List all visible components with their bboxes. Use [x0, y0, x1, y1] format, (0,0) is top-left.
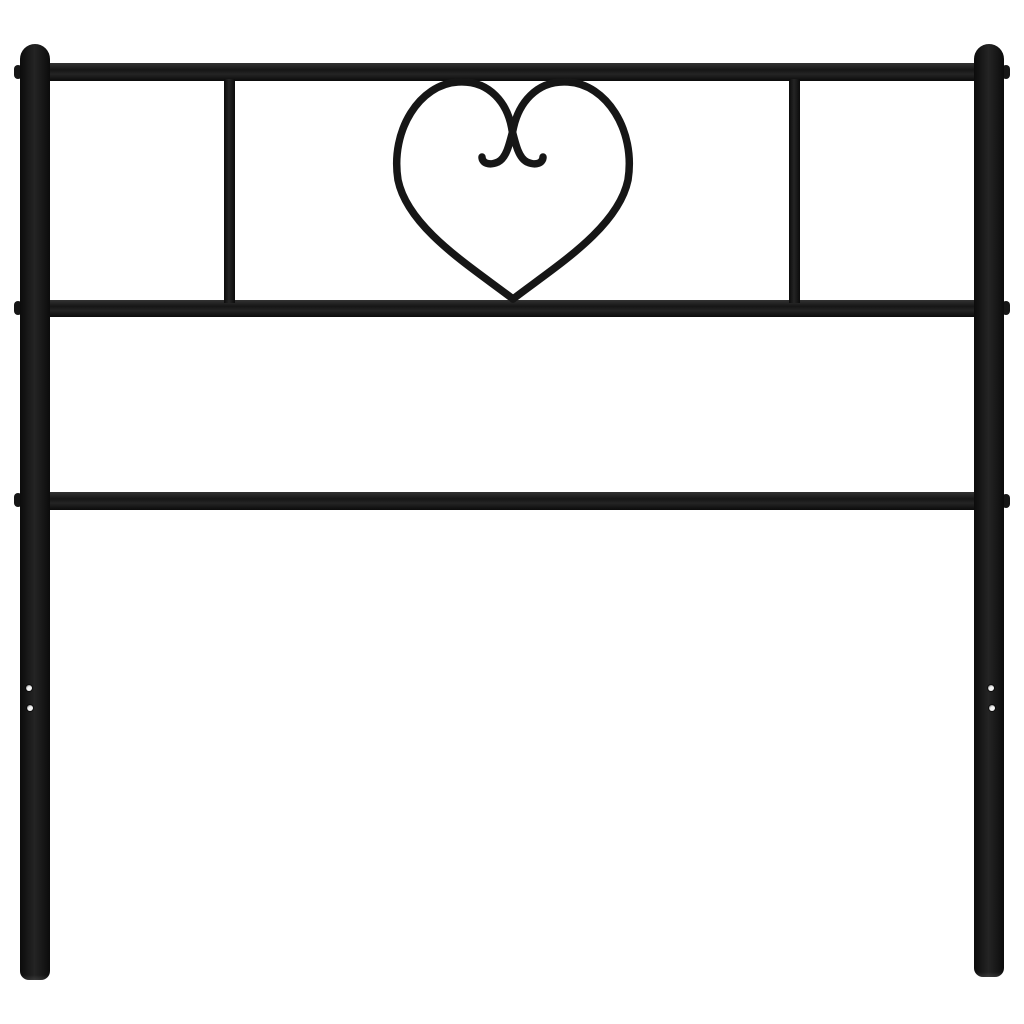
screw-hole-right-upper [988, 685, 994, 691]
screw-hole-left-lower [27, 705, 33, 711]
headboard-product-photo [0, 0, 1024, 1024]
screw-hole-left-upper [26, 685, 32, 691]
right-post [974, 44, 1004, 977]
screw-hole-right-lower [989, 705, 995, 711]
left-post [20, 44, 50, 980]
heart-ornament [0, 0, 1024, 1024]
